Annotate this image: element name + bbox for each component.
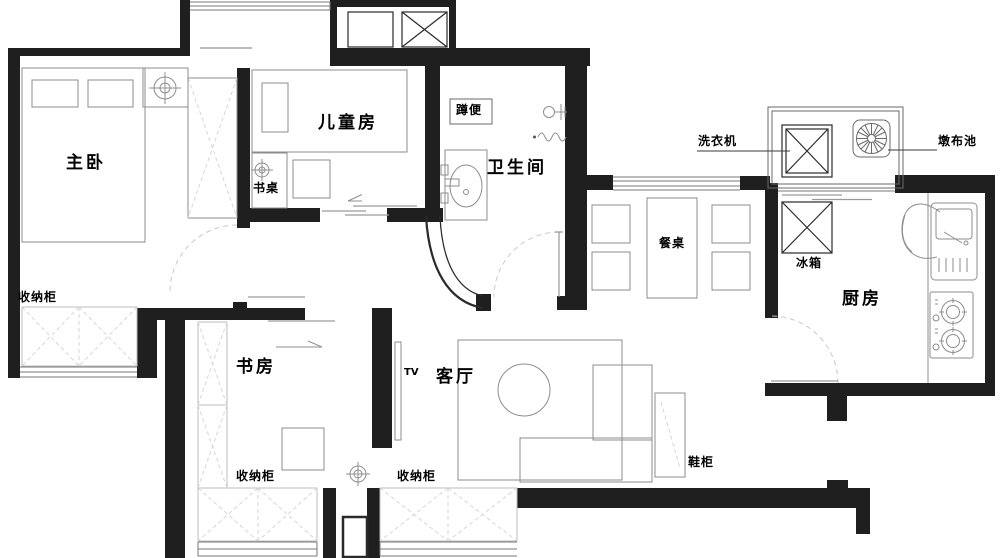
- kitchen-door: [771, 316, 838, 383]
- living-south-cabinet: [380, 488, 517, 541]
- wall: [985, 178, 995, 395]
- study-south-cabinet: [198, 488, 317, 541]
- wall-pier: [827, 480, 848, 488]
- pillow: [262, 83, 288, 132]
- master-wardrobe: [188, 78, 237, 218]
- label-squat-toilet: 蹲便: [456, 104, 482, 116]
- single-bed: [252, 70, 407, 152]
- wall: [165, 320, 185, 558]
- label-mop-pool: 墩布池: [938, 135, 977, 147]
- room-study: [282, 428, 370, 486]
- room-label-master-bedroom: 主卧: [66, 155, 106, 172]
- floor-plan: 主卧 儿童房 卫生间 书房 客厅 厨房 餐桌 洗衣机 墩布池 冰箱 蹲便 书桌 …: [0, 0, 1000, 558]
- pillow: [88, 80, 133, 107]
- bathroom-door: [494, 232, 563, 297]
- tv-unit: [395, 342, 401, 440]
- wall: [765, 383, 995, 396]
- study-west-cabinet: [198, 322, 227, 488]
- wall: [557, 296, 565, 310]
- wall: [565, 175, 613, 190]
- wall: [330, 0, 456, 7]
- wall: [180, 0, 190, 56]
- dining-chair: [712, 252, 750, 290]
- room-label-children-room: 儿童房: [318, 115, 378, 132]
- wall-pier: [827, 396, 847, 421]
- shaft-box: [348, 12, 393, 47]
- ceiling-light-icon: [149, 72, 181, 104]
- dining-chair: [712, 205, 750, 243]
- ceiling-light-icon: [251, 159, 273, 181]
- label-tv: TV: [404, 368, 419, 378]
- room-living: [395, 340, 685, 482]
- room-label-kitchen: 厨房: [842, 291, 882, 308]
- room-label-living-room: 客厅: [436, 369, 476, 386]
- label-storage-study: 收纳柜: [236, 470, 275, 482]
- label-storage-master: 收纳柜: [18, 291, 57, 303]
- wall: [765, 183, 778, 318]
- window-study-south: [198, 542, 317, 556]
- shaft-cross-icon: [402, 12, 447, 47]
- kitchen-sink: [931, 203, 977, 280]
- study-table: [282, 428, 324, 470]
- label-storage-living: 收纳柜: [397, 470, 436, 482]
- walls: [8, 0, 995, 558]
- shoe-cabinet: [655, 393, 685, 477]
- wall: [517, 488, 870, 508]
- label-dining-table: 餐桌: [659, 237, 685, 249]
- room-label-bathroom: 卫生间: [487, 160, 547, 177]
- drain-squiggle-icon: [533, 133, 566, 141]
- wall: [330, 48, 590, 66]
- gas-stove: [930, 292, 973, 358]
- wall: [8, 48, 20, 378]
- wall-pier: [367, 488, 380, 558]
- study-sliding-door: [268, 321, 335, 347]
- wall: [856, 508, 870, 534]
- door-frame-stub: [233, 302, 247, 308]
- mop-pool-icon: [853, 120, 890, 157]
- floor-plan-drawing: [0, 0, 1000, 558]
- window-north-children: [190, 2, 330, 10]
- ceiling-light-icon: [346, 462, 370, 486]
- utility-balcony: [697, 120, 937, 177]
- label-fridge: 冰箱: [796, 257, 822, 269]
- wall: [895, 175, 995, 193]
- wall: [8, 48, 190, 56]
- sofa-section: [520, 438, 652, 482]
- wall: [449, 0, 456, 48]
- coffee-table: [498, 364, 550, 416]
- room-label-study: 书房: [236, 359, 276, 376]
- room-kitchen: [782, 193, 977, 383]
- window-living-south: [380, 542, 517, 556]
- master-storage-cabinet: [22, 307, 137, 366]
- wall: [237, 68, 250, 228]
- window-master-south: [20, 367, 137, 377]
- bathroom-curved-wall: [426, 216, 483, 308]
- desk-chair: [293, 160, 330, 198]
- wall: [372, 308, 392, 448]
- wall: [330, 0, 337, 48]
- window-dining-north: [613, 177, 740, 190]
- wall-pier: [323, 488, 336, 558]
- label-desk: 书桌: [253, 182, 279, 194]
- pillow: [32, 80, 78, 107]
- dining-chair: [592, 205, 630, 243]
- balcony-sliding-door: [782, 195, 872, 200]
- wall: [387, 208, 443, 222]
- dining-chair: [592, 252, 630, 290]
- wall: [245, 208, 320, 222]
- shower-icon: [544, 104, 568, 120]
- label-shoe-cabinet: 鞋柜: [688, 456, 714, 468]
- faucet-swing: [902, 204, 940, 258]
- fridge: [782, 202, 832, 253]
- wall-stub: [476, 294, 491, 311]
- master-bedroom-door: [170, 225, 305, 297]
- wall: [425, 66, 440, 218]
- label-washing-machine: 洗衣机: [698, 135, 737, 147]
- duct-shaft: [348, 12, 447, 47]
- wash-basin: [441, 150, 487, 220]
- wall: [137, 308, 305, 320]
- south-pillar-bay: [343, 517, 367, 557]
